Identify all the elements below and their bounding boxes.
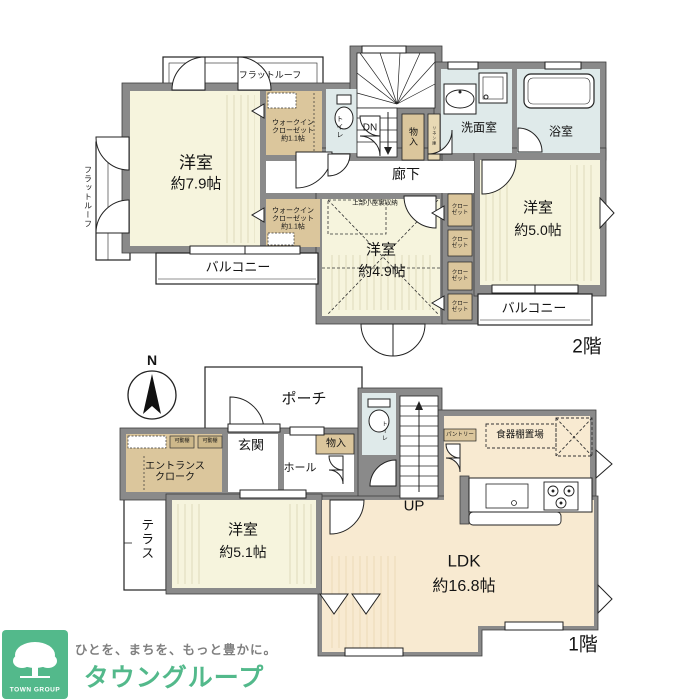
linen-label: リネン庫	[432, 126, 436, 146]
ldk-name: LDK	[447, 551, 480, 570]
floor1-label: 1階	[568, 634, 598, 655]
bedroom-51-size: 約5.1帖	[219, 545, 266, 561]
cloak-line2: クローク	[145, 472, 205, 483]
bedroom-51-hatch-l	[176, 504, 204, 584]
stairs-up-label: UP	[404, 499, 425, 516]
bedroom-79-hatch	[225, 95, 255, 243]
wic-bottom-line2: クローゼット	[272, 215, 314, 223]
closet-3-line2: ゼット	[452, 276, 469, 282]
closet-1-line2: ゼット	[452, 210, 469, 216]
ldk-size: 約16.8帖	[432, 578, 495, 596]
balcony-left-label: バルコニー	[206, 261, 271, 276]
closet-2-line2: ゼット	[452, 243, 469, 249]
wic-top-line2: クローゼット	[272, 127, 314, 135]
washroom-sink-icon	[444, 84, 476, 114]
logo-tagline: ひとを、まちを、もっと豊かに。	[75, 643, 277, 657]
shelf-label-2: 可動棚	[202, 439, 217, 445]
corridor-label: 廊下	[392, 167, 420, 183]
logo-brand-en: TOWN GROUP	[10, 686, 60, 693]
toilet-2f-label: トイレ	[335, 115, 343, 139]
floor2-label: 2階	[572, 336, 602, 357]
bedroom-49-name: 洋室	[366, 243, 396, 260]
flat-roof-top-label: フラットルーフ	[239, 70, 301, 80]
closet-4-line2: ゼット	[452, 307, 469, 313]
storage-1f-label: 物入	[326, 438, 346, 449]
bedroom-79-name: 洋室	[179, 153, 213, 172]
entrance-label: 玄関	[238, 439, 264, 454]
terrace-label: テラス	[139, 518, 154, 560]
bedroom-51-hatch-r	[286, 504, 312, 584]
wic-top-label: ウォークイン クローゼット 約1.1帖	[272, 119, 314, 142]
compass	[128, 371, 176, 419]
floorplan-canvas: フラットルーフ フラットルーフ 洋室 約7.9帖 ウォークイン クローゼット 約…	[0, 0, 700, 700]
bedroom-50-size: 約5.0帖	[514, 223, 561, 239]
wic-bottom-line3: 約1.1帖	[272, 223, 314, 231]
toilet-1f-label: トイレ	[380, 421, 387, 442]
logo-brand: タウングループ	[84, 664, 265, 692]
stairs-1f	[400, 396, 438, 498]
flat-roof-left-label: フラットルーフ	[83, 166, 92, 229]
cloak-line1: エントランス	[145, 461, 205, 472]
shelf-label-1: 可動棚	[174, 439, 189, 445]
wic-top-line1: ウォークイン	[272, 119, 314, 127]
bedroom-50-hatch-r	[570, 165, 596, 281]
bathroom-label: 浴室	[549, 125, 573, 138]
closet-label-1: クロー ゼット	[452, 204, 469, 216]
wic-bottom-line1: ウォークイン	[272, 207, 314, 215]
bedroom-50-name: 洋室	[523, 201, 553, 218]
bedroom-49-size: 約4.9帖	[358, 264, 405, 280]
bedroom-51-name: 洋室	[228, 523, 258, 540]
balcony-right-label: バルコニー	[502, 302, 567, 317]
closet-label-2: クロー ゼット	[452, 237, 469, 249]
stairs-down-label: DN	[363, 122, 377, 133]
bedroom-79-size: 約7.9帖	[171, 177, 222, 194]
wic-top-line3: 約1.1帖	[272, 135, 314, 143]
washroom-label: 洗面室	[461, 121, 497, 134]
closet-label-4: クロー ゼット	[452, 301, 469, 313]
wic-bottom-label: ウォークイン クローゼット 約1.1帖	[272, 207, 314, 230]
sink-icon	[486, 484, 528, 508]
porch-label: ポーチ	[281, 392, 326, 409]
pantry-label: パントリー	[446, 432, 474, 438]
bathtub-icon	[524, 74, 594, 108]
storage-2f-label: 物入	[408, 127, 418, 147]
closet-label-3: クロー ゼット	[452, 270, 469, 282]
cupboard-area-label: 食器棚置場	[496, 431, 544, 442]
washing-machine-icon	[479, 73, 507, 103]
entrance-cloak-label: エントランス クローク	[145, 461, 205, 483]
hall-label: ホール	[284, 462, 317, 474]
attic-note-label: 上部小屋裏収納	[352, 199, 398, 206]
compass-north-label: N	[147, 353, 157, 369]
